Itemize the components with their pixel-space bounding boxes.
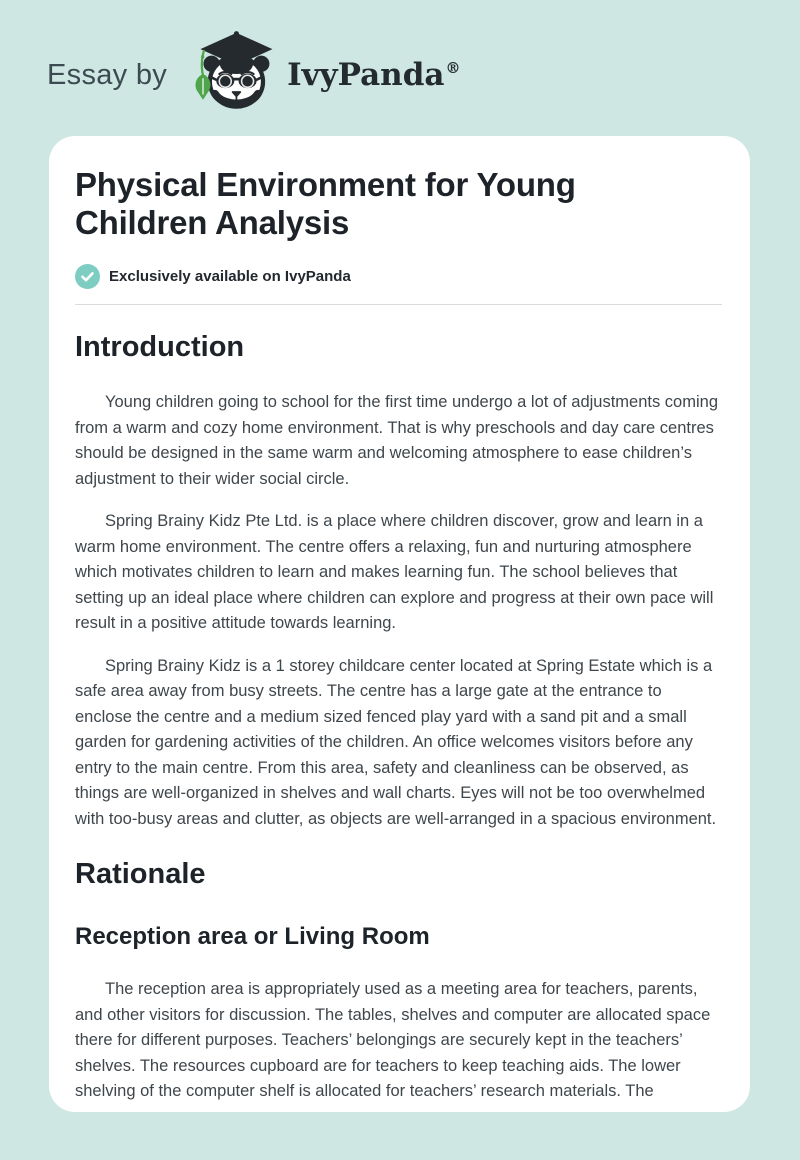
brand-name: IvyPanda® xyxy=(287,57,460,93)
site-header: Essay by xyxy=(0,0,800,122)
paragraph: Spring Brainy Kidz is a 1 storey childca… xyxy=(75,654,722,833)
section-heading-rationale: Rationale xyxy=(75,858,722,891)
paragraph: Young children going to school for the f… xyxy=(75,390,722,492)
paragraph: The reception area is appropriately used… xyxy=(75,977,722,1105)
essay-title: Physical Environment for Young Children … xyxy=(75,166,655,242)
essay-card: Physical Environment for Young Children … xyxy=(49,136,750,1112)
badge-label: Exclusively available on IvyPanda xyxy=(109,268,351,285)
exclusive-badge: Exclusively available on IvyPanda xyxy=(75,264,722,289)
brand-text: IvyPanda xyxy=(287,57,444,93)
panda-graduate-icon xyxy=(183,26,283,122)
essay-by-label: Essay by xyxy=(47,59,167,92)
check-icon xyxy=(75,264,100,289)
section-heading-introduction: Introduction xyxy=(75,331,722,364)
paragraph: Spring Brainy Kidz Pte Ltd. is a place w… xyxy=(75,509,722,637)
registered-mark: ® xyxy=(445,59,460,77)
divider xyxy=(75,304,722,305)
subsection-heading-reception-area: Reception area or Living Room xyxy=(75,923,722,951)
